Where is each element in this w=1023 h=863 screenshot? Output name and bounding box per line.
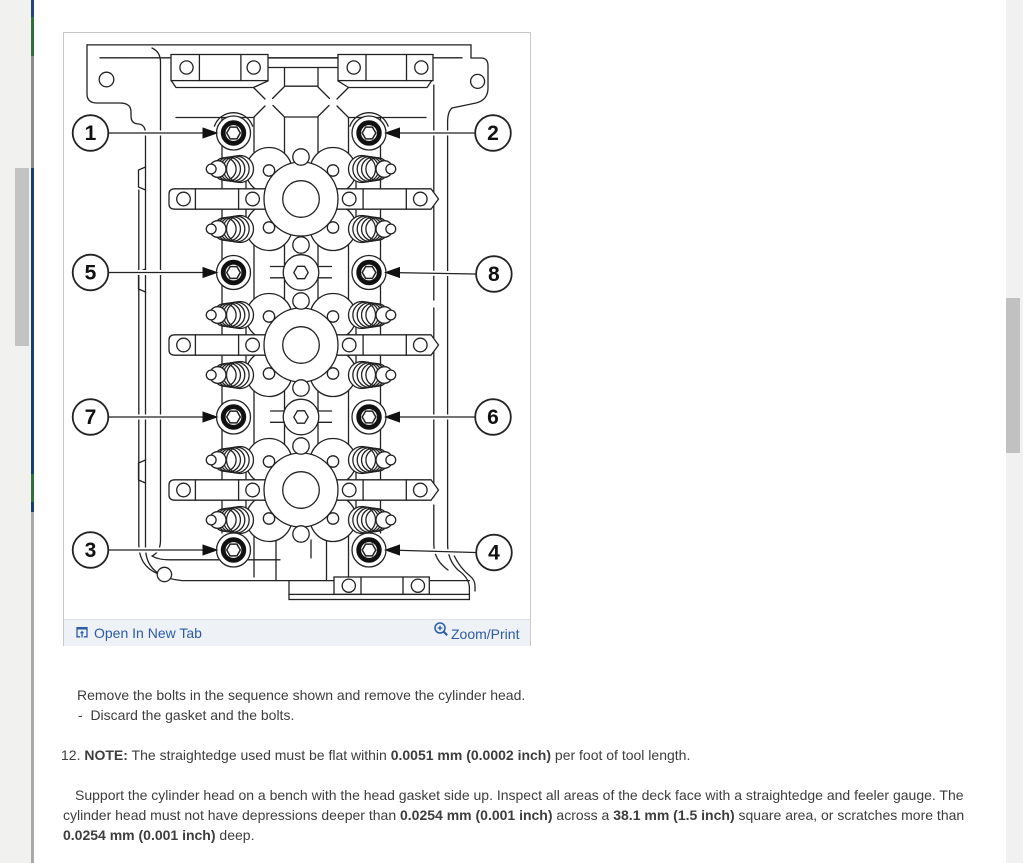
svg-text:8: 8: [488, 263, 500, 286]
svg-text:4: 4: [488, 542, 500, 565]
svg-text:2: 2: [487, 122, 499, 145]
svg-text:7: 7: [85, 406, 97, 429]
svg-text:1: 1: [85, 122, 97, 145]
svg-text:6: 6: [487, 406, 499, 429]
svg-text:3: 3: [85, 539, 97, 562]
svg-text:5: 5: [85, 262, 97, 285]
